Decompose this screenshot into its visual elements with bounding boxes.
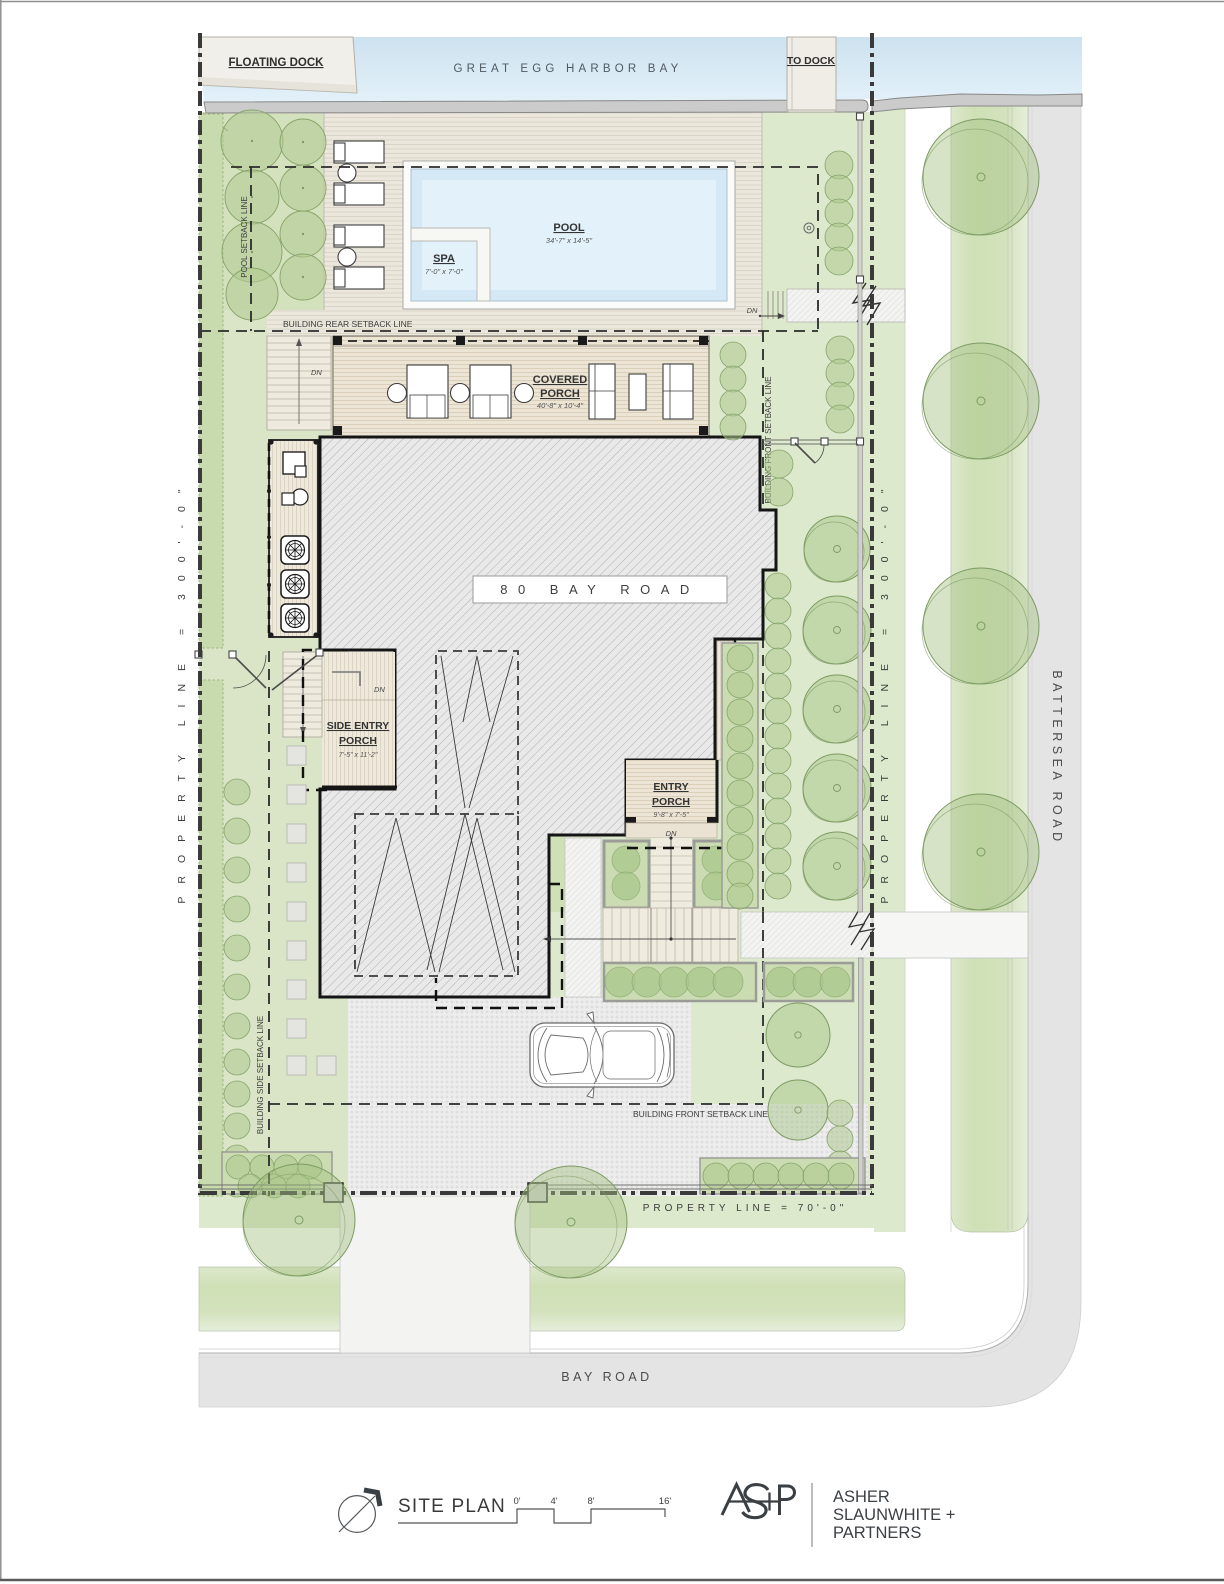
svg-text:7'-5" x 11'-2": 7'-5" x 11'-2" <box>339 752 378 759</box>
svg-text:16': 16' <box>659 1496 672 1507</box>
svg-text:BAY ROAD: BAY ROAD <box>561 1370 652 1384</box>
svg-text:PROPERTY LINE = 300'-0": PROPERTY LINE = 300'-0" <box>879 476 891 903</box>
svg-text:BUILDING REAR SETBACK LINE: BUILDING REAR SETBACK LINE <box>283 319 413 329</box>
svg-text:8': 8' <box>587 1496 594 1507</box>
svg-text:TO DOCK: TO DOCK <box>787 55 836 67</box>
svg-text:DN: DN <box>311 368 322 377</box>
svg-text:PORCH: PORCH <box>540 388 580 400</box>
svg-text:34'-7" x 14'-5": 34'-7" x 14'-5" <box>546 236 592 245</box>
svg-text:PARTNERS: PARTNERS <box>833 1524 921 1542</box>
svg-text:PORCH: PORCH <box>652 796 690 808</box>
svg-text:BUILDING FRONT SETBACK LINE: BUILDING FRONT SETBACK LINE <box>633 1109 768 1119</box>
svg-text:ASHER: ASHER <box>833 1488 890 1506</box>
svg-text:BUILDING SIDE SETBACK LINE: BUILDING SIDE SETBACK LINE <box>256 1016 265 1134</box>
svg-text:POOL: POOL <box>553 222 584 234</box>
svg-text:DN: DN <box>747 306 758 315</box>
svg-text:80 BAY ROAD: 80 BAY ROAD <box>500 582 700 597</box>
svg-text:COVERED: COVERED <box>533 374 587 386</box>
svg-text:7'-0" x 7'-0": 7'-0" x 7'-0" <box>425 267 463 276</box>
svg-text:SLAUNWHITE +: SLAUNWHITE + <box>833 1506 955 1524</box>
svg-text:DN: DN <box>374 685 385 694</box>
svg-text:GREAT EGG HARBOR BAY: GREAT EGG HARBOR BAY <box>453 63 682 75</box>
svg-text:40'-8" x 10'-4": 40'-8" x 10'-4" <box>537 401 583 410</box>
svg-text:0': 0' <box>513 1496 520 1507</box>
svg-text:SIDE ENTRY: SIDE ENTRY <box>327 720 390 732</box>
svg-text:SITE PLAN: SITE PLAN <box>398 1496 506 1517</box>
svg-text:PORCH: PORCH <box>339 735 377 747</box>
svg-text:PROPERTY LINE = 70'-0": PROPERTY LINE = 70'-0" <box>643 1203 848 1214</box>
svg-text:9'-8" x 7'-5": 9'-8" x 7'-5" <box>653 812 689 819</box>
svg-text:BATTERSEA ROAD: BATTERSEA ROAD <box>1050 670 1064 845</box>
svg-text:SPA: SPA <box>433 253 455 265</box>
svg-text:PROPERTY LINE = 300'-0": PROPERTY LINE = 300'-0" <box>176 476 188 903</box>
svg-text:ENTRY: ENTRY <box>653 781 688 793</box>
svg-text:4': 4' <box>550 1496 557 1507</box>
svg-text:POOL SETBACK LINE: POOL SETBACK LINE <box>240 196 249 278</box>
svg-text:FLOATING DOCK: FLOATING DOCK <box>229 57 325 69</box>
